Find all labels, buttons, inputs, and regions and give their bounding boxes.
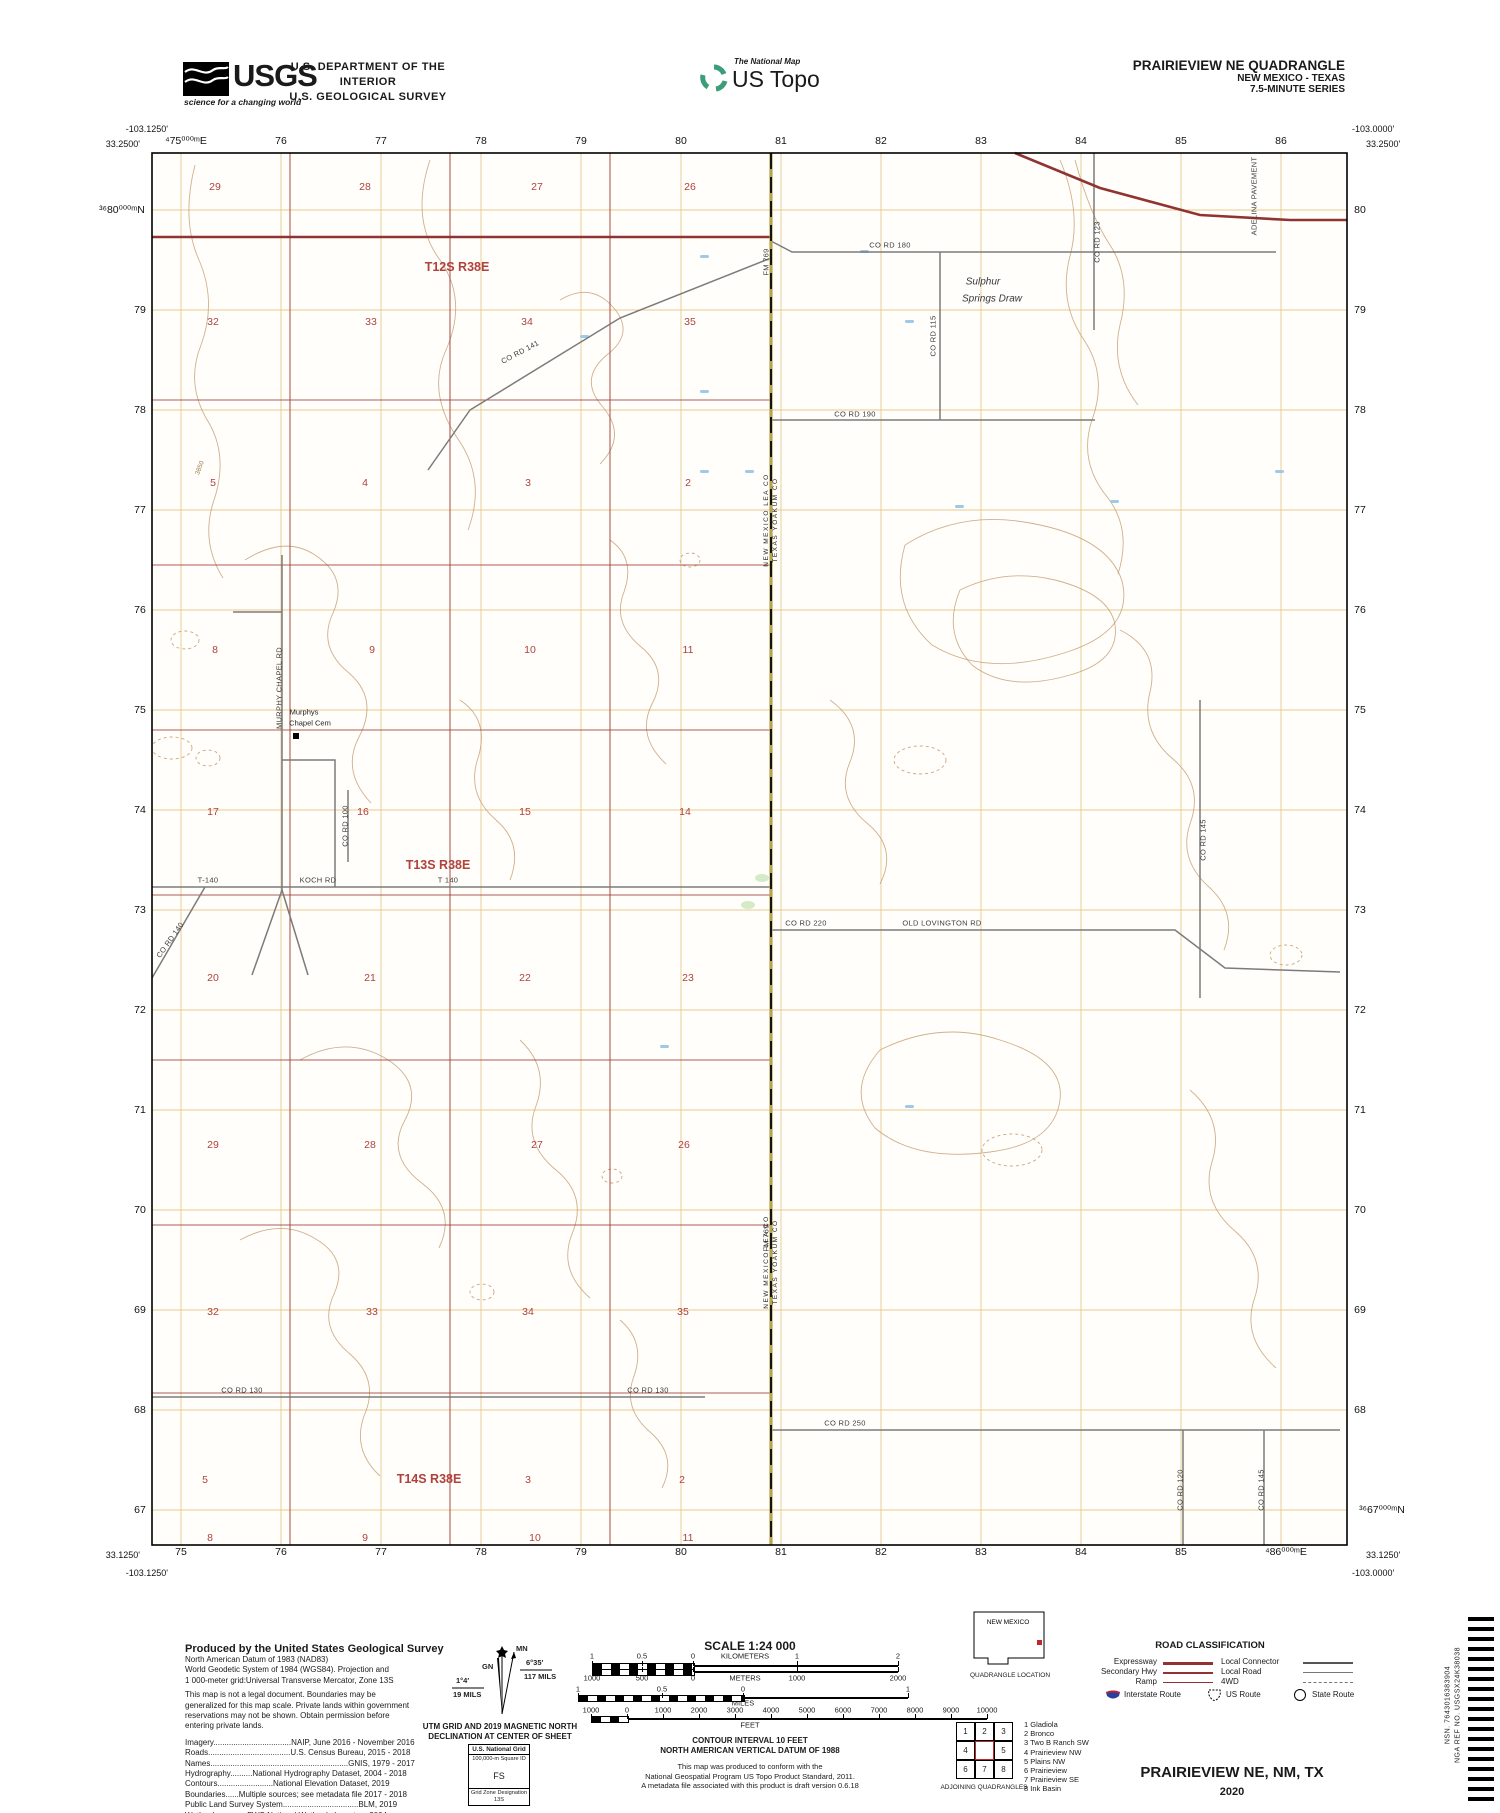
scale-tick bbox=[693, 1667, 694, 1672]
barcode-bar bbox=[1468, 1767, 1494, 1771]
adjoining-cell: 8 bbox=[994, 1760, 1013, 1779]
scale-unit-label: KILOMETERS bbox=[721, 1652, 769, 1661]
scale-tick bbox=[699, 1714, 700, 1719]
produced-by-line: Hydrography..........National Hydrograph… bbox=[185, 1769, 485, 1779]
contour-interval-note: CONTOUR INTERVAL 10 FEET NORTH AMERICAN … bbox=[600, 1736, 900, 1756]
scale-tick-label: 2000 bbox=[890, 1674, 907, 1683]
utm-caption-line1: UTM GRID AND 2019 MAGNETIC NORTH bbox=[380, 1722, 620, 1732]
utm-declination-caption: UTM GRID AND 2019 MAGNETIC NORTH DECLINA… bbox=[380, 1722, 620, 1742]
conformance-line: This map was produced to conform with th… bbox=[580, 1762, 920, 1772]
barcode-bar bbox=[1468, 1697, 1494, 1701]
road-class-title: ROAD CLASSIFICATION bbox=[1155, 1640, 1265, 1651]
quad-location-caption: QUADRANGLE LOCATION bbox=[970, 1672, 1050, 1679]
road-class-sample-line bbox=[1303, 1662, 1353, 1664]
road-class-label: Local Connector bbox=[1221, 1657, 1279, 1666]
conformance-line: National Geospatial Program US Topo Prod… bbox=[580, 1772, 920, 1782]
road-class-sample-line bbox=[1163, 1662, 1213, 1665]
usng-title: U.S. National Grid bbox=[469, 1745, 529, 1755]
road-class-sample-line bbox=[1303, 1682, 1353, 1683]
adjoining-cell: 6 bbox=[956, 1760, 975, 1779]
route-shield-label: Interstate Route bbox=[1124, 1690, 1181, 1699]
route-shield-label: State Route bbox=[1312, 1690, 1354, 1699]
scale-tick-label: 2 bbox=[896, 1652, 900, 1661]
adjoining-quad-name: 8 Ink Basin bbox=[1024, 1784, 1089, 1793]
map-canvas bbox=[0, 0, 1500, 1813]
adjoining-cell: 7 bbox=[975, 1760, 994, 1779]
barcode-bar bbox=[1468, 1787, 1494, 1791]
barcode-bar bbox=[1468, 1692, 1494, 1696]
barcode-bar bbox=[1468, 1667, 1494, 1671]
scale-tick bbox=[743, 1693, 744, 1698]
produced-by-line: Roads...................................… bbox=[185, 1748, 485, 1758]
us-topo-map-sheet: USGS science for a changing world U.S. D… bbox=[0, 0, 1500, 1813]
adjoining-cell: 5 bbox=[994, 1741, 1013, 1760]
scale-tick bbox=[663, 1714, 664, 1719]
adjoining-quad-name: 1 Gladiola bbox=[1024, 1720, 1089, 1729]
barcode-bar bbox=[1468, 1637, 1494, 1641]
adjoining-cell: 3 bbox=[994, 1722, 1013, 1741]
produced-by-line: Boundaries......Multiple sources; see me… bbox=[185, 1790, 485, 1800]
barcode-bar bbox=[1468, 1772, 1494, 1776]
barcode-bar bbox=[1468, 1617, 1494, 1621]
barcode-bar bbox=[1468, 1612, 1494, 1616]
scale-tick bbox=[843, 1714, 844, 1719]
adjoining-caption: ADJOINING QUADRANGLES bbox=[940, 1784, 1027, 1791]
interstate-shield-icon bbox=[1105, 1688, 1121, 1706]
gn-mils: 19 MILS bbox=[453, 1690, 481, 1699]
barcode-bar bbox=[1468, 1627, 1494, 1631]
us-route-shield-icon bbox=[1207, 1688, 1222, 1706]
scale-bar bbox=[591, 1718, 987, 1720]
scale-tick-label: 1 bbox=[795, 1652, 799, 1661]
usng-zone-label: Grid Zone Designation bbox=[469, 1790, 529, 1797]
barcode-bar bbox=[1468, 1657, 1494, 1661]
barcode-bar bbox=[1468, 1677, 1494, 1681]
road-class-sample-line bbox=[1163, 1682, 1213, 1683]
corner-top-right-lon: -103.0000' bbox=[1352, 124, 1394, 134]
barcode-bar bbox=[1468, 1712, 1494, 1716]
barcode-bar bbox=[1468, 1792, 1494, 1796]
barcode-block: NSN. 7643016383904 NGA REF NO. USGSX24K3… bbox=[1440, 1600, 1500, 1810]
barcode-bar bbox=[1468, 1647, 1494, 1651]
scale-tick bbox=[592, 1667, 593, 1672]
state-route-circle-icon bbox=[1293, 1688, 1307, 1707]
scale-tick-label: 0 bbox=[691, 1652, 695, 1661]
usng-zone: Grid Zone Designation 13S bbox=[469, 1788, 529, 1805]
adjoining-quad-name: 4 Prairieview NW bbox=[1024, 1748, 1089, 1757]
barcode-bar bbox=[1468, 1717, 1494, 1721]
corner-bottom-right-lat: 33.1250' bbox=[1366, 1550, 1400, 1560]
barcode-bar bbox=[1468, 1662, 1494, 1666]
produced-by-line: Public Land Survey System...............… bbox=[185, 1800, 485, 1810]
barcode-bar bbox=[1468, 1642, 1494, 1646]
scale-tick bbox=[898, 1661, 899, 1666]
barcode-bar bbox=[1468, 1752, 1494, 1756]
adjoining-quad-name: 3 Two B Ranch SW bbox=[1024, 1738, 1089, 1747]
scale-tick bbox=[951, 1714, 952, 1719]
scale-tick bbox=[662, 1693, 663, 1698]
mn-degrees: 6°35′ bbox=[526, 1658, 543, 1667]
adjoining-cell: 4 bbox=[956, 1741, 975, 1760]
conformance-note: This map was produced to conform with th… bbox=[580, 1762, 920, 1791]
road-classification: ROAD CLASSIFICATION ExpresswayLocal Conn… bbox=[1075, 1640, 1375, 1720]
mn-mils: 117 MILS bbox=[524, 1672, 556, 1681]
scale-tick-label: 1 bbox=[590, 1652, 594, 1661]
scale-tick bbox=[642, 1661, 643, 1666]
scale-tick bbox=[908, 1693, 909, 1698]
barcode-bar bbox=[1468, 1652, 1494, 1656]
adjoining-cell: 1 bbox=[956, 1722, 975, 1741]
sheet-year: 2020 bbox=[1220, 1786, 1244, 1798]
scale-tick bbox=[879, 1714, 880, 1719]
sheet-title: PRAIRIEVIEW NE, NM, TX bbox=[1140, 1764, 1323, 1781]
utm-caption-line2: DECLINATION AT CENTER OF SHEET bbox=[380, 1732, 620, 1742]
scale-tick bbox=[898, 1667, 899, 1672]
adjoining-quad-name: 6 Prairieview bbox=[1024, 1766, 1089, 1775]
scale-unit-label: METERS bbox=[729, 1674, 760, 1683]
barcode-bar bbox=[1468, 1742, 1494, 1746]
scale-tick bbox=[987, 1714, 988, 1719]
conformance-line: A metadata file associated with this pro… bbox=[580, 1781, 920, 1791]
barcode-bar bbox=[1468, 1737, 1494, 1741]
scale-tick bbox=[627, 1714, 628, 1719]
scale-tick bbox=[915, 1714, 916, 1719]
scale-tick-label: 0.5 bbox=[637, 1652, 647, 1661]
scale-tick bbox=[797, 1661, 798, 1666]
barcode-bar bbox=[1468, 1672, 1494, 1676]
adjoining-quad-name: 2 Bronco bbox=[1024, 1729, 1089, 1738]
road-class-label: Expressway bbox=[1075, 1657, 1157, 1666]
mn-label: MN bbox=[516, 1644, 528, 1653]
corner-bottom-left-lon: -103.1250' bbox=[88, 1568, 168, 1578]
barcode-bar bbox=[1468, 1687, 1494, 1691]
scale-tick bbox=[797, 1667, 798, 1672]
barcode-bar bbox=[1468, 1622, 1494, 1626]
usng-square-id: FS bbox=[469, 1763, 529, 1788]
barcode-bar bbox=[1468, 1777, 1494, 1781]
corner-top-right-lat: 33.2500' bbox=[1366, 139, 1400, 149]
road-class-label: 4WD bbox=[1221, 1677, 1239, 1686]
road-class-label: Local Road bbox=[1221, 1667, 1261, 1676]
quadrangle-location: NEW MEXICO QUADRANGLE LOCATION bbox=[968, 1608, 1052, 1682]
scale-tick bbox=[735, 1714, 736, 1719]
barcode-bar bbox=[1468, 1747, 1494, 1751]
adjoining-names: 1 Gladiola2 Bronco3 Two B Ranch SW4 Prai… bbox=[1024, 1720, 1089, 1794]
gn-degrees: 1°4′ bbox=[456, 1676, 469, 1685]
new-mexico-outline-icon: NEW MEXICO bbox=[968, 1608, 1052, 1670]
adjoining-quad-name: 5 Plains NW bbox=[1024, 1757, 1089, 1766]
scale-tick bbox=[693, 1661, 694, 1666]
barcode-bar bbox=[1468, 1702, 1494, 1706]
produced-by-line: Names...................................… bbox=[185, 1759, 485, 1769]
road-class-label: Secondary Hwy bbox=[1075, 1667, 1157, 1676]
road-class-label: Ramp bbox=[1075, 1677, 1157, 1686]
adjoining-grid: 12345678 bbox=[956, 1722, 1013, 1779]
scale-bar-stripes bbox=[591, 1716, 629, 1723]
corner-bottom-left-lat: 33.1250' bbox=[60, 1550, 140, 1560]
barcode-bar bbox=[1468, 1762, 1494, 1766]
adjoining-quad-name: 7 Prairieview SE bbox=[1024, 1775, 1089, 1784]
corner-top-left-lat: 33.2500' bbox=[60, 139, 140, 149]
gn-label: GN bbox=[482, 1662, 493, 1671]
adjoining-cell: 2 bbox=[975, 1722, 994, 1741]
barcode-bar bbox=[1468, 1722, 1494, 1726]
barcode-bar bbox=[1468, 1757, 1494, 1761]
scale-unit-label: FEET bbox=[740, 1721, 759, 1730]
nga-ref-text: NGA REF NO. USGSX24K38038 bbox=[1455, 1647, 1462, 1763]
road-class-sample-line bbox=[1163, 1672, 1213, 1674]
corner-bottom-right-lon: -103.0000' bbox=[1352, 1568, 1394, 1578]
barcode-bar bbox=[1468, 1727, 1494, 1731]
barcode-bar bbox=[1468, 1797, 1494, 1801]
road-class-sample-line bbox=[1303, 1672, 1353, 1673]
scale-tick bbox=[771, 1714, 772, 1719]
usng-zone-value: 13S bbox=[469, 1797, 529, 1804]
quad-location-state-text: NEW MEXICO bbox=[987, 1619, 1030, 1626]
produced-by-line: Contours.........................Nationa… bbox=[185, 1779, 485, 1789]
barcode-bar bbox=[1468, 1782, 1494, 1786]
barcode-bar bbox=[1468, 1632, 1494, 1636]
contour-line2: NORTH AMERICAN VERTICAL DATUM OF 1988 bbox=[600, 1746, 900, 1756]
scale-tick bbox=[591, 1714, 592, 1719]
nsn-text: NSN. 7643016383904 bbox=[1445, 1666, 1452, 1744]
barcode-bar bbox=[1468, 1732, 1494, 1736]
scale-tick bbox=[642, 1667, 643, 1672]
corner-top-left-lon: -103.1250' bbox=[88, 124, 168, 134]
scale-tick bbox=[807, 1714, 808, 1719]
scale-tick-label: 1000 bbox=[789, 1674, 806, 1683]
contour-line1: CONTOUR INTERVAL 10 FEET bbox=[600, 1736, 900, 1746]
scale-bar-stripes bbox=[592, 1669, 695, 1676]
usng-subtitle: 100,000-m Square ID bbox=[469, 1755, 529, 1763]
scale-tick bbox=[578, 1693, 579, 1698]
barcode-bar bbox=[1468, 1682, 1494, 1686]
us-national-grid-box: U.S. National Grid 100,000-m Square ID F… bbox=[468, 1744, 530, 1806]
adjoining-center-cell bbox=[975, 1741, 994, 1760]
declination-diagram: MN GN 6°35′ 117 MILS 1°4′ 19 MILS bbox=[440, 1636, 570, 1736]
scale-tick bbox=[592, 1661, 593, 1666]
barcode-icon bbox=[1468, 1612, 1494, 1802]
route-shield-label: US Route bbox=[1226, 1690, 1261, 1699]
barcode-bar bbox=[1468, 1707, 1494, 1711]
